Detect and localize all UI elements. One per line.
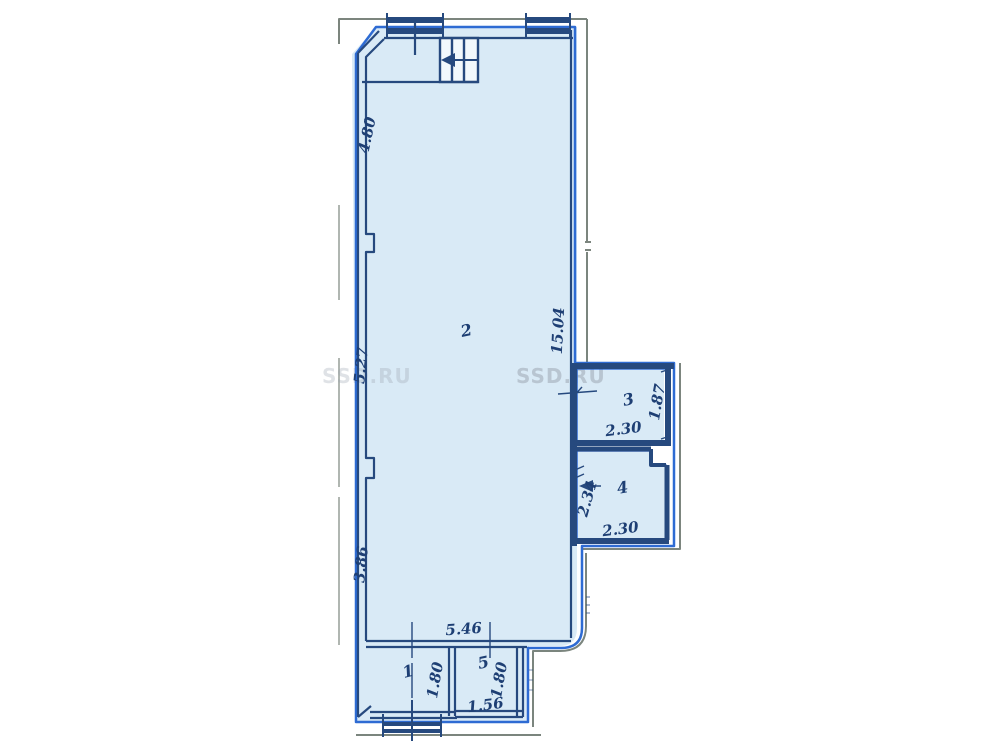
floor-plan-drawing: SSD.RU SSD.RU xyxy=(0,0,1000,750)
dim-bottom-span: 5.46 xyxy=(445,619,483,640)
outer-right-upper xyxy=(585,19,591,363)
dim-left-lower: 3.86 xyxy=(350,545,372,584)
dim-right-main: 15.04 xyxy=(548,307,568,355)
staircase xyxy=(440,38,478,82)
floor-plan-page: SSD.RU SSD.RU xyxy=(0,0,1000,750)
wall-room4-notch xyxy=(651,449,666,465)
dim-left-middle: 5.27 xyxy=(350,346,372,385)
